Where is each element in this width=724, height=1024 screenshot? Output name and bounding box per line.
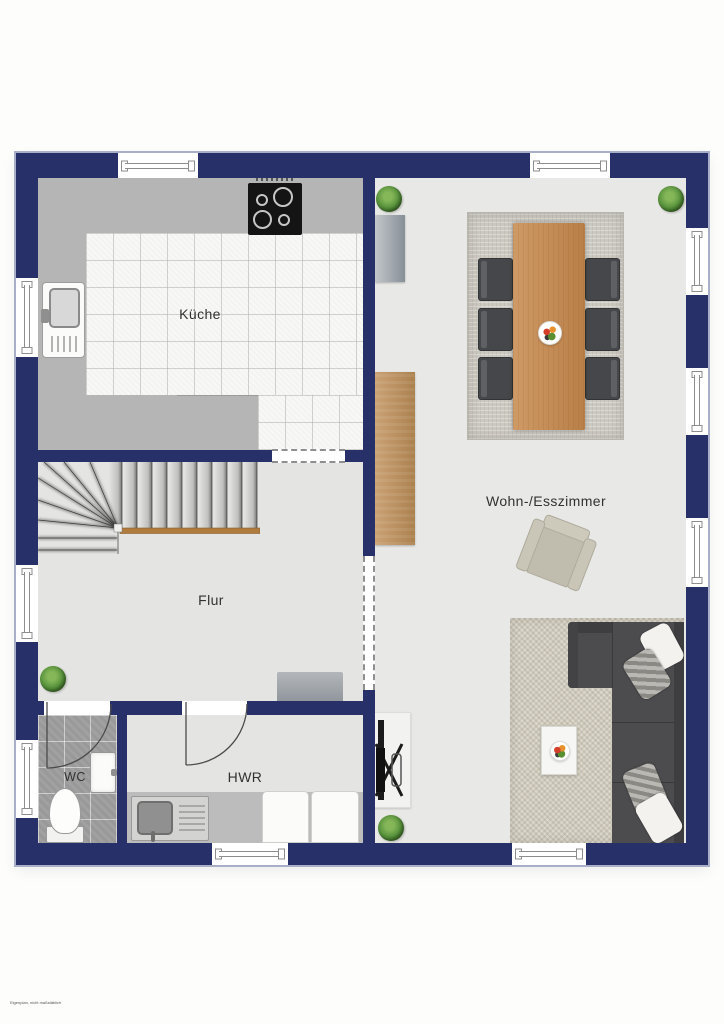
plant-icon [378,815,404,841]
kitchen-tile-floor-lower [258,395,363,450]
fruit-bowl-icon [538,321,562,345]
dryer [311,791,359,843]
doormat [277,672,343,703]
floor-plan: Küche Flur Wohn-/Esszimmer WC HWR Eigenp… [0,0,724,1024]
window [530,153,610,178]
window [686,368,708,435]
burner-icon [253,210,272,229]
dining-chair [585,308,620,351]
tv-icon [372,712,411,808]
sink-drainboard [51,336,79,352]
dining-chair [585,357,620,400]
dining-chair [478,258,513,301]
opening-hall-living [363,556,375,690]
wall-wc-utility [117,715,127,843]
kitchen-sink [42,282,85,358]
utility-sink-unit [131,796,209,841]
toilet-bowl [49,788,81,834]
dining-chair [585,258,620,301]
dining-chair [478,357,513,400]
window [686,518,708,587]
window [16,740,38,818]
window [16,278,38,357]
utility-door-swing [183,701,249,771]
plant-icon [376,186,402,212]
faucet-icon [41,309,49,323]
room-label-wc: WC [64,770,86,784]
wooden-cabinet [375,372,415,545]
plan-footnote: Eigenplan, nicht maßstäblich [10,1001,61,1006]
sink-drainboard [179,805,205,833]
window [16,565,38,642]
wall-outer-bottom [16,843,708,865]
burner-icon [256,194,268,206]
kitchen-counter-edge [177,395,258,396]
room-label-hall: Flur [198,592,224,608]
stair-handrail [120,528,260,534]
room-label-kitchen: Küche [179,306,221,322]
burner-icon [278,214,290,226]
burner-icon [273,187,293,207]
washing-machine [262,791,309,843]
sink-basin [49,288,80,328]
sink-basin [137,801,173,835]
window [686,228,708,295]
window [118,153,198,178]
staircase [38,462,260,554]
room-label-living: Wohn-/Esszimmer [486,493,606,509]
fruit-bowl-icon [550,741,570,761]
window [512,843,586,865]
sideboard [375,215,405,282]
opening-kitchen-hall [272,449,345,463]
plant-icon [40,666,66,692]
room-label-utility: HWR [228,769,263,785]
faucet-icon [151,831,155,842]
toilet [46,788,84,843]
dining-chair [478,308,513,351]
kitchen-tile-floor [86,233,363,395]
stove [248,183,302,235]
plant-icon [658,186,684,212]
wall-main-vertical [363,178,375,843]
wc-door-swing [44,701,112,773]
window [212,843,288,865]
